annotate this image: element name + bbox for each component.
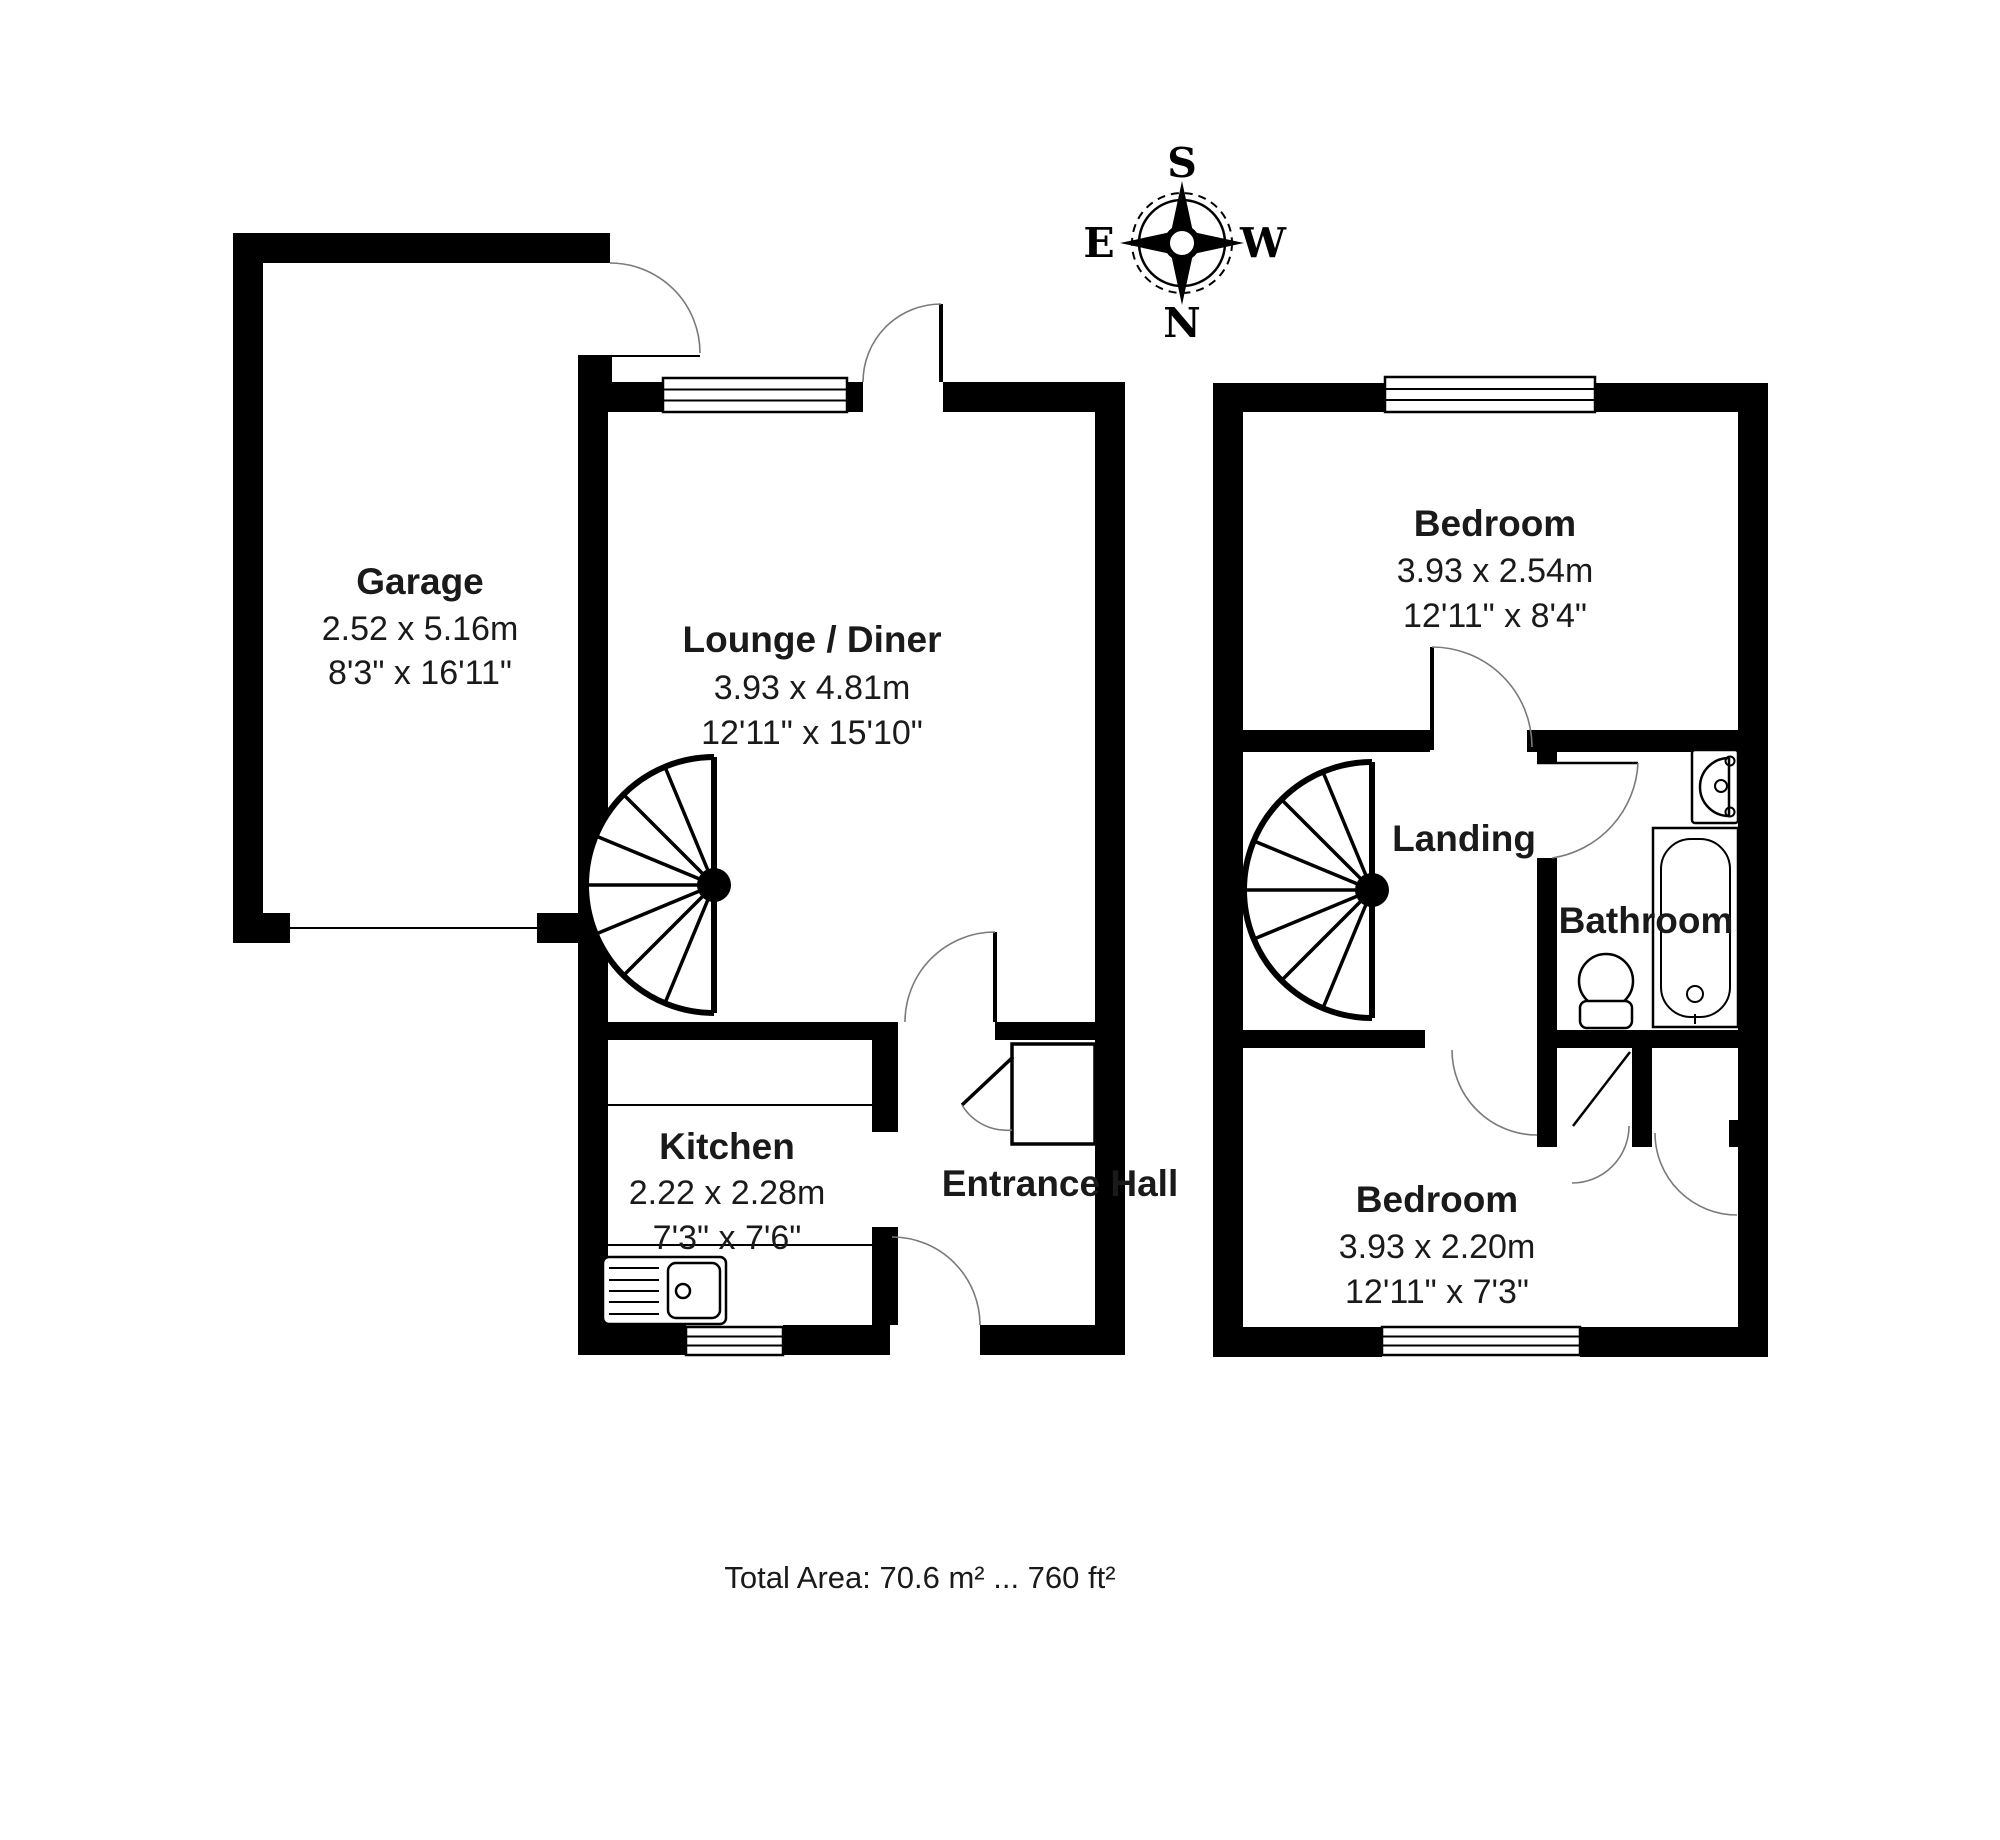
bedroom-back-window — [1382, 1327, 1580, 1355]
bedroom-front-name: Bedroom — [1414, 503, 1576, 544]
hall-closet — [962, 1044, 1095, 1144]
cupboard-door-right — [1655, 1133, 1737, 1215]
bathroom-label: Bathroom — [1559, 900, 1734, 941]
bedroom-front-metric: 3.93 x 2.54m — [1397, 552, 1594, 590]
garage-metric: 2.52 x 5.16m — [322, 610, 519, 648]
bedroom-back-metric: 3.93 x 2.20m — [1339, 1228, 1536, 1266]
bedroom-front-window — [1385, 377, 1595, 412]
bedroom-back-imperial: 12'11" x 7'3" — [1345, 1273, 1529, 1311]
back-door — [863, 304, 941, 382]
bedroom-back-label: Bedroom 3.93 x 2.20m 12'11" x 7'3" — [1339, 1179, 1536, 1311]
compass-rose-icon: S E W N — [1083, 139, 1287, 347]
cupboard-door-left — [1572, 1052, 1630, 1183]
garage-name: Garage — [356, 561, 484, 602]
total-area-text: Total Area: 70.6 m² ... 760 ft² — [724, 1560, 1115, 1595]
kitchen-window — [686, 1327, 783, 1355]
ground-floor-plan: Garage 2.52 x 5.16m 8'3" x 16'11" Lounge… — [233, 233, 1178, 1355]
garage-imperial: 8'3" x 16'11" — [328, 654, 512, 692]
garage-side-door — [610, 263, 700, 356]
lounge-window — [663, 378, 847, 412]
bedroom-front-door — [1432, 647, 1532, 750]
bathroom-door — [1537, 763, 1638, 858]
lounge-hall-door — [905, 932, 995, 1022]
bedroom-back-door — [1452, 1050, 1537, 1135]
first-floor-plan: Bedroom 3.93 x 2.54m 12'11" x 8'4" Landi… — [1213, 377, 1768, 1357]
kitchen-label: Kitchen 2.22 x 2.28m 7'3" x 7'6" — [629, 1126, 826, 1257]
garage-label: Garage 2.52 x 5.16m 8'3" x 16'11" — [322, 561, 519, 692]
bedroom-front-label: Bedroom 3.93 x 2.54m 12'11" x 8'4" — [1397, 503, 1594, 635]
lounge-imperial: 12'11" x 15'10" — [701, 714, 923, 752]
kitchen-metric: 2.22 x 2.28m — [629, 1174, 826, 1212]
floorplan-page: S E W N — [0, 0, 2000, 1840]
lounge-name: Lounge / Diner — [683, 619, 942, 660]
bathroom-sink-icon — [1692, 750, 1738, 823]
kitchen-name: Kitchen — [659, 1126, 795, 1167]
spiral-stairs-first-icon — [1244, 762, 1389, 1018]
floorplan-drawing: S E W N — [0, 0, 2000, 1840]
entrance-hall-label: Entrance Hall — [942, 1163, 1178, 1204]
lounge-label: Lounge / Diner 3.93 x 4.81m 12'11" x 15'… — [683, 619, 942, 752]
kitchen-sink-icon — [603, 1257, 726, 1324]
kitchen-imperial: 7'3" x 7'6" — [653, 1219, 802, 1257]
bedroom-front-imperial: 12'11" x 8'4" — [1403, 597, 1587, 635]
bedroom-back-name: Bedroom — [1356, 1179, 1518, 1220]
compass-west-label: W — [1239, 219, 1287, 267]
landing-label: Landing — [1392, 818, 1536, 859]
lounge-metric: 3.93 x 4.81m — [714, 669, 911, 707]
compass-north-label: N — [1163, 299, 1200, 347]
front-door — [892, 1237, 980, 1325]
compass-south-label: S — [1167, 139, 1197, 187]
compass-east-label: E — [1083, 219, 1114, 267]
toilet-icon — [1579, 954, 1633, 1028]
